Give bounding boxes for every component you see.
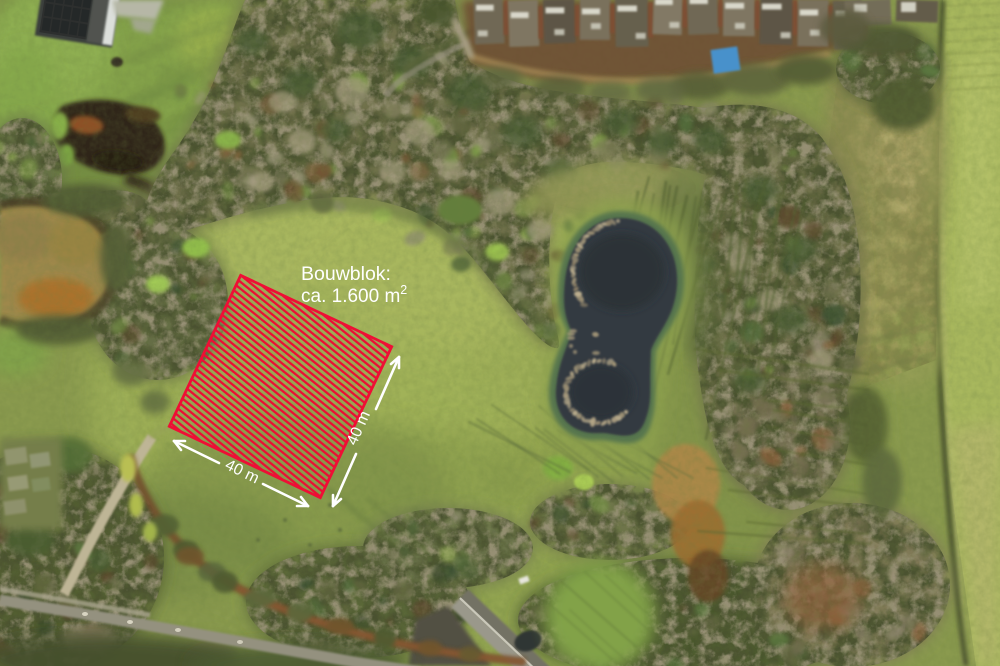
svg-text:Bouwblok:: Bouwblok: — [301, 263, 391, 285]
svg-text:ca. 1.600 m2: ca. 1.600 m2 — [301, 283, 407, 307]
